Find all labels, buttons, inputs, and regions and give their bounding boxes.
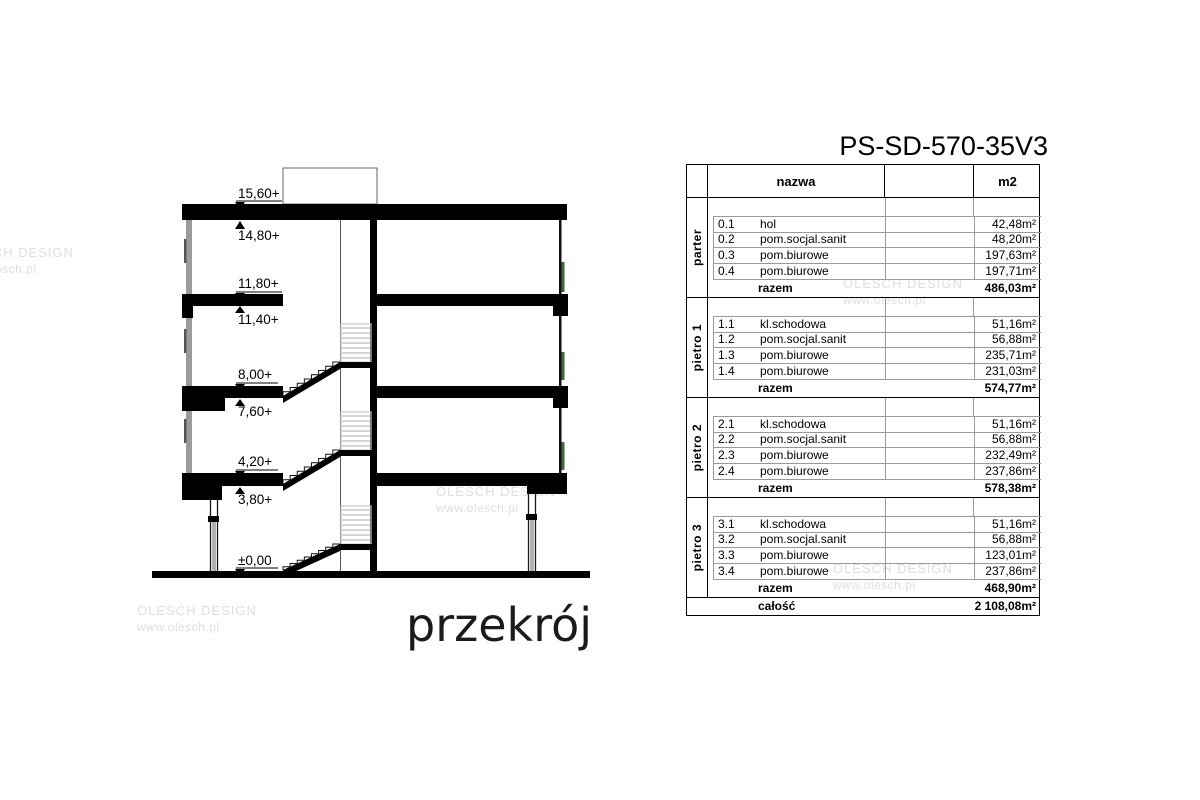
page: { "colors": { "window_green": "#3e6b38" … [0, 0, 1200, 800]
total-area: 2 108,08m² [974, 599, 1041, 614]
row-number-cell: 2.1 [713, 416, 758, 433]
right-wall [559, 220, 562, 473]
row-name-cell: kl.schodowa [758, 416, 885, 433]
subtotal-row: razem 486,03m² [708, 280, 1041, 297]
table-row: 3.1 kl.schodowa 51,16m² [708, 516, 1041, 532]
drawing-label: przekrój [406, 598, 592, 652]
slab-beam [182, 398, 225, 411]
table-row: 1.3 pom.biurowe 235,71m² [708, 348, 1041, 364]
row-name-cell: pom.socjal.sanit [758, 332, 885, 348]
slab-beam [527, 486, 567, 494]
row-area-cell: 51,16m² [974, 416, 1041, 433]
window-glazing [562, 352, 565, 380]
elevation-label: 7,60+ [238, 404, 272, 419]
stair-landing [340, 450, 377, 456]
subtotal-row: razem 578,38m² [708, 480, 1041, 497]
row-number-cell: 2.3 [713, 448, 758, 464]
row-number-cell: 2.4 [713, 464, 758, 480]
table-row: 3.2 pom.socjal.sanit 56,88m² [708, 532, 1041, 548]
row-area-cell: 56,88m² [974, 332, 1041, 348]
floor-group-label: pietro 1 [687, 298, 708, 397]
group-gap-row [708, 198, 1041, 216]
row-name-cell: pom.biurowe [758, 348, 885, 364]
elevation-label: 11,40+ [238, 312, 279, 327]
row-number-cell: 0.1 [713, 216, 758, 233]
floor-group-label: parter [687, 198, 708, 297]
header-name-cell: nazwa [708, 165, 885, 197]
table-row: 1.2 pom.socjal.sanit 56,88m² [708, 332, 1041, 348]
floor-slab-800-left [182, 386, 283, 398]
table-row: 2.1 kl.schodowa 51,16m² [708, 416, 1041, 432]
subtotal-area: 486,03m² [974, 281, 1041, 296]
total-row: całość 2 108,08m² [687, 597, 1039, 615]
table-row: 1.4 pom.biurowe 231,03m² [708, 364, 1041, 380]
table-row: 0.2 pom.socjal.sanit 48,20m² [708, 232, 1041, 248]
row-area-cell: 51,16m² [974, 516, 1041, 533]
ground-floor-right-wall [526, 494, 537, 571]
row-number-cell: 1.2 [713, 332, 758, 348]
left-window-frame [184, 419, 187, 443]
group-gap-row [708, 498, 1041, 516]
elevation-label: 14,80+ [238, 228, 280, 243]
header-group-cell [687, 165, 708, 197]
stair-flight-hatch [341, 324, 371, 544]
subtotal-label: razem [758, 581, 885, 596]
floor-group-label: pietro 2 [687, 398, 708, 497]
slab-beam [553, 306, 568, 316]
row-area-cell: 237,86m² [974, 464, 1041, 480]
window-glazing [562, 262, 565, 292]
table-row: 2.3 pom.biurowe 232,49m² [708, 448, 1041, 464]
penthouse-box [283, 168, 377, 204]
stair-landing [340, 362, 377, 368]
group-gap-row [708, 298, 1041, 316]
row-name-cell: pom.biurowe [758, 364, 885, 380]
elevation-label: 3,80+ [238, 492, 272, 507]
row-number-cell: 0.4 [713, 264, 758, 280]
stair-landing [340, 544, 377, 550]
elevation-marker: 11,40+ [235, 306, 279, 327]
left-window-frame [184, 239, 187, 263]
subtotal-label: razem [758, 381, 885, 396]
row-area-cell: 51,16m² [974, 316, 1041, 333]
floor-slab-420-right [377, 473, 567, 486]
slab-beam [182, 486, 222, 500]
subtotal-label: razem [758, 481, 885, 496]
row-number-cell: 1.1 [713, 316, 758, 333]
subtotal-row: razem 574,77m² [708, 380, 1041, 397]
table-row: 1.1 kl.schodowa 51,16m² [708, 316, 1041, 332]
table-row: 0.1 hol 42,48m² [708, 216, 1041, 232]
floor-slab-420-left [182, 473, 283, 486]
row-number-cell: 1.3 [713, 348, 758, 364]
row-area-cell: 123,01m² [974, 548, 1041, 564]
row-name-cell: pom.biurowe [758, 464, 885, 480]
area-table: nazwa m2 parter 0.1 hol 42,48m² 0.2 pom.… [686, 164, 1040, 616]
row-name-cell: pom.biurowe [758, 548, 885, 564]
row-name-cell: pom.socjal.sanit [758, 232, 885, 248]
window-glazing [562, 442, 565, 470]
ground-floor-left-wall [208, 499, 219, 571]
elevation-label: 11,80+ [238, 276, 279, 291]
row-number-cell: 0.2 [713, 232, 758, 248]
elevation-marker: 3,80+ [235, 487, 272, 507]
row-number-cell: 1.4 [713, 364, 758, 380]
slab-beam [182, 306, 193, 318]
row-area-cell: 197,63m² [974, 248, 1041, 264]
row-area-cell: 197,71m² [974, 264, 1041, 280]
subtotal-area: 578,38m² [974, 481, 1041, 496]
sheet-title: PS-SD-570-35V3 [698, 131, 1048, 162]
floor-slab-800-right [377, 386, 568, 398]
row-area-cell: 231,03m² [974, 364, 1041, 380]
group-gap-row [708, 398, 1041, 416]
row-name-cell: pom.socjal.sanit [758, 532, 885, 548]
row-area-cell: 237,86m² [974, 564, 1041, 580]
floor-slab-1180-right [377, 294, 568, 306]
subtotal-area: 574,77m² [974, 381, 1041, 396]
row-area-cell: 56,88m² [974, 532, 1041, 548]
row-name-cell: pom.biurowe [758, 564, 885, 580]
table-row: 3.4 pom.biurowe 237,86m² [708, 564, 1041, 580]
ground-line [152, 571, 590, 578]
elevation-label: 15,60+ [238, 186, 280, 201]
row-number-cell: 0.3 [713, 248, 758, 264]
row-name-cell: hol [758, 216, 885, 233]
floor-slab-1180-left [182, 294, 283, 306]
row-area-cell: 232,49m² [974, 448, 1041, 464]
row-name-cell: pom.socjal.sanit [758, 432, 885, 448]
subtotal-label: razem [758, 281, 885, 296]
row-name-cell: pom.biurowe [758, 448, 885, 464]
slab-beam [553, 398, 568, 408]
row-number-cell: 3.1 [713, 516, 758, 533]
elevation-marker: 7,60+ [235, 399, 272, 419]
elevation-label: ±0,00 [238, 553, 272, 568]
row-name-cell: kl.schodowa [758, 516, 885, 533]
table-row: 0.3 pom.biurowe 197,63m² [708, 248, 1041, 264]
row-number-cell: 3.3 [713, 548, 758, 564]
row-area-cell: 48,20m² [974, 232, 1041, 248]
subtotal-row: razem 468,90m² [708, 580, 1041, 597]
floor-group: pietro 3 3.1 kl.schodowa 51,16m² 3.2 pom… [687, 497, 1039, 597]
row-number-cell: 3.2 [713, 532, 758, 548]
total-label: całość [758, 599, 885, 614]
elevation-marker: 14,80+ [235, 221, 280, 243]
row-name-cell: pom.biurowe [758, 248, 885, 264]
table-row: 3.3 pom.biurowe 123,01m² [708, 548, 1041, 564]
elevation-label: 4,20+ [238, 454, 272, 469]
left-wall [186, 220, 192, 473]
floor-group-label: pietro 3 [687, 498, 708, 597]
table-row: 2.2 pom.socjal.sanit 56,88m² [708, 432, 1041, 448]
header-area-cell: m2 [974, 165, 1041, 197]
table-header-row: nazwa m2 [687, 165, 1039, 197]
elevation-label: 8,00+ [238, 367, 272, 382]
row-name-cell: kl.schodowa [758, 316, 885, 333]
row-area-cell: 56,88m² [974, 432, 1041, 448]
stair-flight [283, 362, 340, 577]
left-window-frame [184, 329, 187, 353]
subtotal-area: 468,90m² [974, 581, 1041, 596]
row-area-cell: 42,48m² [974, 216, 1041, 233]
table-row: 2.4 pom.biurowe 237,86m² [708, 464, 1041, 480]
row-name-cell: pom.biurowe [758, 264, 885, 280]
header-empty-cell [885, 165, 974, 197]
row-number-cell: 3.4 [713, 564, 758, 580]
row-area-cell: 235,71m² [974, 348, 1041, 364]
floor-group: pietro 2 2.1 kl.schodowa 51,16m² 2.2 pom… [687, 397, 1039, 497]
floor-group: parter 0.1 hol 42,48m² 0.2 pom.socjal.sa… [687, 197, 1039, 297]
floor-group: pietro 1 1.1 kl.schodowa 51,16m² 1.2 pom… [687, 297, 1039, 397]
row-number-cell: 2.2 [713, 432, 758, 448]
table-row: 0.4 pom.biurowe 197,71m² [708, 264, 1041, 280]
